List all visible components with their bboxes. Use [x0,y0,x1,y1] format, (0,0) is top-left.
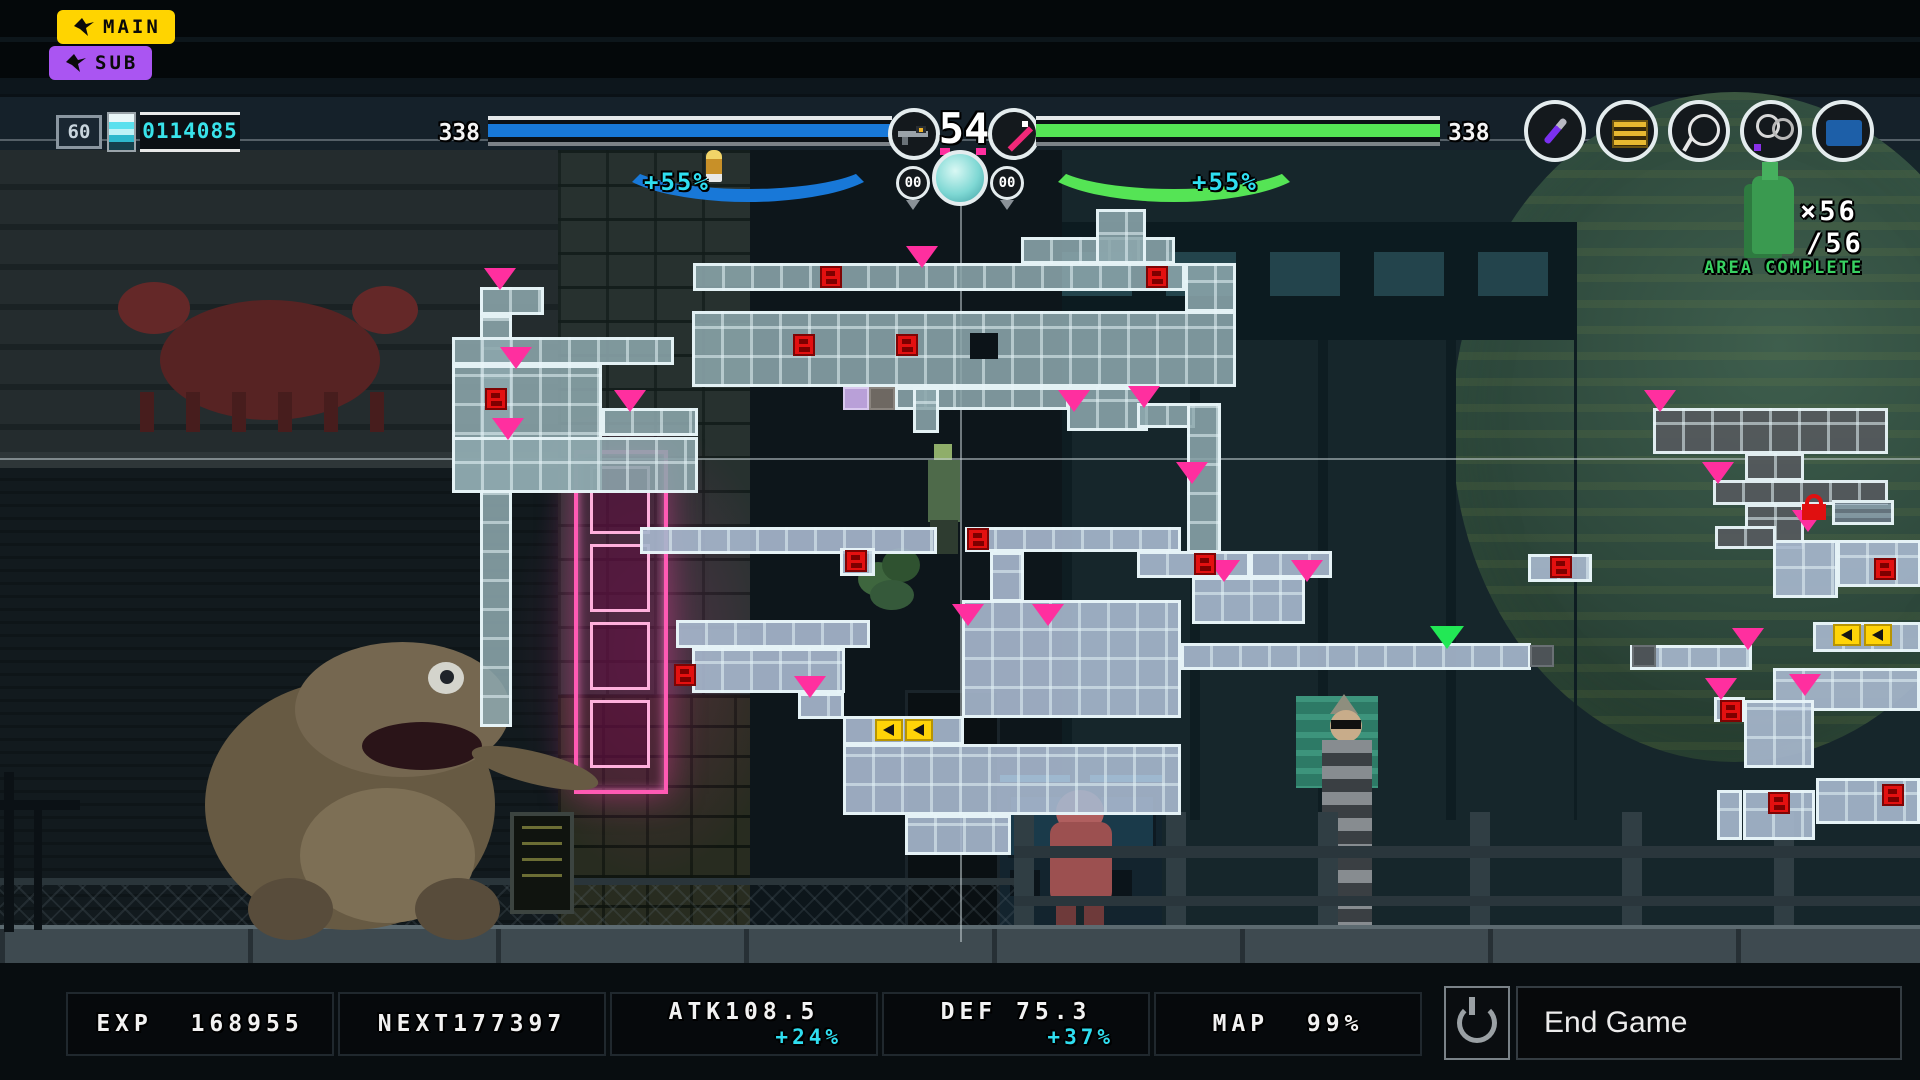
fps-counter: 60 [56,115,102,149]
bottle-neck [1762,162,1778,180]
game-screen: MAIN SUB 60 0114085 338 54 338 00 [0,0,1920,1080]
item-slot-wire-loop[interactable] [1740,100,1802,162]
item-slot-blue-card[interactable] [1812,100,1874,162]
bird-icon [71,16,95,38]
area-complete-label: AREA COMPLETE [1704,258,1863,278]
end-game-label: End Game [1518,1006,1687,1040]
main-weapon-badge[interactable]: MAIN [57,10,175,44]
cable-loop-item-icon [1688,114,1720,146]
bird-icon [63,52,87,74]
power-icon [1457,1003,1497,1043]
left-bar-value: 338 [428,120,480,146]
ammo-left-counter: 00 [896,166,930,200]
left-buff-value: +55% [644,168,710,196]
item-slot-dagger[interactable] [1524,100,1586,162]
wire-tip [1754,144,1761,151]
right-buff-arc [1038,118,1310,202]
gun-weapon-circle[interactable] [888,108,940,160]
right-buff-value: +55% [1192,168,1258,196]
sub-weapon-badge[interactable]: SUB [49,46,152,80]
level-number: 54 [936,104,992,153]
credits-counter: 0114085 [140,112,240,152]
gold-ticket-item-icon [1612,120,1648,148]
blue-card-item-icon [1826,120,1862,146]
sub-weapon-label: SUB [95,52,138,74]
ammo-left-pointer [906,200,920,210]
area-total: /56 [1806,228,1864,259]
level-pip [976,148,986,155]
wire-loop-item-icon [1772,118,1794,140]
main-weapon-label: MAIN [103,16,161,38]
end-game-button[interactable]: End Game [1516,986,1902,1060]
ammo-right-counter: 00 [990,166,1024,200]
item-slot-gold-ticket[interactable] [1596,100,1658,162]
battery-icon [107,112,136,152]
ammo-right-pointer [1000,200,1014,210]
item-slot-cable-loop[interactable] [1668,100,1730,162]
sword-icon [992,112,1036,156]
power-button[interactable] [1444,986,1510,1060]
area-count: ×56 [1800,196,1858,227]
sword-weapon-circle[interactable] [988,108,1040,160]
energy-orb [932,150,988,206]
gun-icon [892,112,936,156]
cable-tail [1682,136,1693,152]
right-bar-value: 338 [1448,120,1504,146]
bottle-icon [1752,176,1794,254]
dagger-item-icon [1543,117,1568,144]
